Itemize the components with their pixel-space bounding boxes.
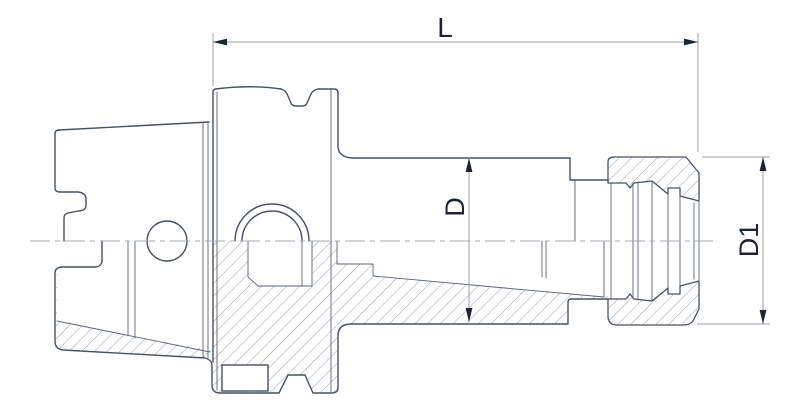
nut-lower-section — [608, 281, 699, 325]
arrowhead-up — [760, 157, 767, 171]
shank-left-face — [55, 130, 60, 192]
technical-drawing: L D D1 — [0, 0, 812, 417]
flange-right-edge — [338, 93, 352, 158]
label-body-diameter: D — [440, 197, 470, 217]
ball-track-inner-arc — [242, 211, 302, 241]
flange-top-right-edge — [318, 89, 338, 93]
label-nut-diameter: D1 — [734, 223, 764, 258]
flange-pocket — [222, 365, 268, 391]
ball-track-outer-arc — [235, 204, 309, 241]
flange-top-edge — [216, 87, 281, 89]
shank-grip-notch — [60, 192, 86, 241]
dimension-L: L — [213, 12, 698, 152]
arrowhead-right — [684, 39, 698, 46]
flange-v-groove — [281, 89, 318, 106]
shank-taper-top — [59, 122, 209, 130]
arrowhead-up — [466, 158, 473, 172]
label-length: L — [437, 12, 453, 43]
arrowhead-down — [760, 310, 767, 324]
arrowhead-left — [213, 39, 227, 46]
drawing-canvas: L D D1 — [0, 0, 812, 417]
nut-upper-section — [608, 157, 699, 201]
